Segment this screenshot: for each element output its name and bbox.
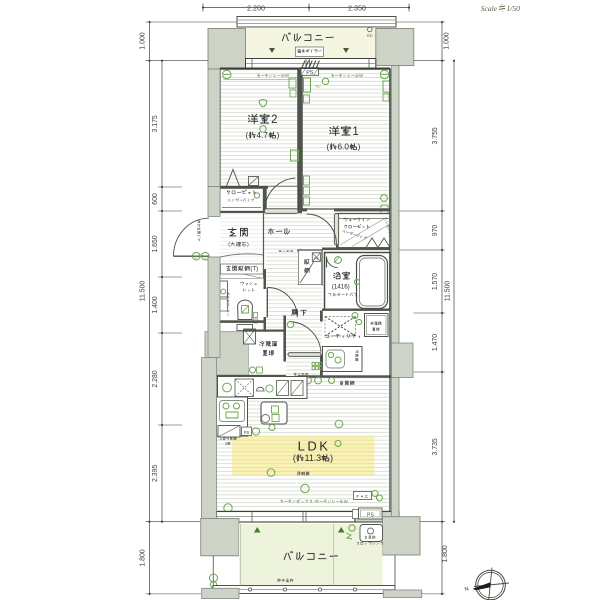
svg-text:600: 600 bbox=[152, 193, 159, 205]
svg-text:3.175: 3.175 bbox=[152, 115, 159, 132]
svg-text:2.280: 2.280 bbox=[152, 370, 159, 387]
svg-text:2.200: 2.200 bbox=[247, 3, 265, 12]
svg-text:1.800: 1.800 bbox=[140, 549, 147, 566]
svg-text:11.3: 11.3 bbox=[305, 453, 322, 463]
svg-text:2.350: 2.350 bbox=[348, 3, 366, 12]
svg-text:1.570: 1.570 bbox=[432, 273, 439, 290]
svg-text:1: 1 bbox=[352, 126, 358, 138]
svg-text:D: D bbox=[204, 254, 207, 259]
svg-text:11.500: 11.500 bbox=[445, 281, 452, 302]
svg-text:Scale: Scale bbox=[481, 4, 498, 13]
svg-text:1.800: 1.800 bbox=[442, 545, 449, 562]
svg-text:B: B bbox=[195, 254, 198, 259]
svg-text:5: 5 bbox=[225, 442, 227, 446]
svg-text:2.395: 2.395 bbox=[152, 465, 159, 482]
svg-text:3.755: 3.755 bbox=[432, 127, 439, 144]
svg-text:): ) bbox=[247, 242, 249, 248]
svg-text:3.735: 3.735 bbox=[432, 438, 439, 455]
svg-text:1.470: 1.470 bbox=[432, 334, 439, 351]
svg-text:1.000: 1.000 bbox=[444, 32, 451, 49]
svg-text:F: F bbox=[356, 494, 359, 499]
svg-text:W: W bbox=[344, 499, 348, 504]
svg-text:PS: PS bbox=[367, 513, 374, 519]
svg-text:(: ( bbox=[228, 242, 230, 248]
svg-text:1.650: 1.650 bbox=[152, 235, 159, 252]
svg-text:PS: PS bbox=[314, 257, 319, 261]
svg-text:RD: RD bbox=[367, 33, 373, 38]
svg-text:2: 2 bbox=[271, 114, 277, 126]
svg-text:): ) bbox=[358, 143, 361, 152]
svg-text:(: ( bbox=[246, 131, 249, 140]
svg-text:): ) bbox=[277, 131, 280, 140]
svg-text:(T): (T) bbox=[250, 266, 258, 273]
svg-text:1.000: 1.000 bbox=[140, 32, 147, 49]
svg-text:(: ( bbox=[327, 143, 330, 152]
svg-text:1/50: 1/50 bbox=[507, 4, 521, 13]
svg-text:): ) bbox=[330, 453, 333, 463]
svg-text:W: W bbox=[285, 73, 289, 78]
svg-text:970: 970 bbox=[432, 225, 439, 237]
svg-text:(1416): (1416) bbox=[332, 284, 350, 291]
svg-text:AC: AC bbox=[315, 85, 321, 89]
svg-text:PS: PS bbox=[244, 430, 250, 435]
svg-text:PS: PS bbox=[306, 70, 314, 76]
svg-text:11.500: 11.500 bbox=[140, 281, 147, 302]
svg-text:1.400: 1.400 bbox=[152, 296, 159, 313]
svg-text:6.0: 6.0 bbox=[338, 143, 350, 152]
svg-text:LDK: LDK bbox=[298, 439, 331, 454]
svg-text:(: ( bbox=[293, 453, 296, 463]
svg-text:W: W bbox=[359, 73, 363, 78]
